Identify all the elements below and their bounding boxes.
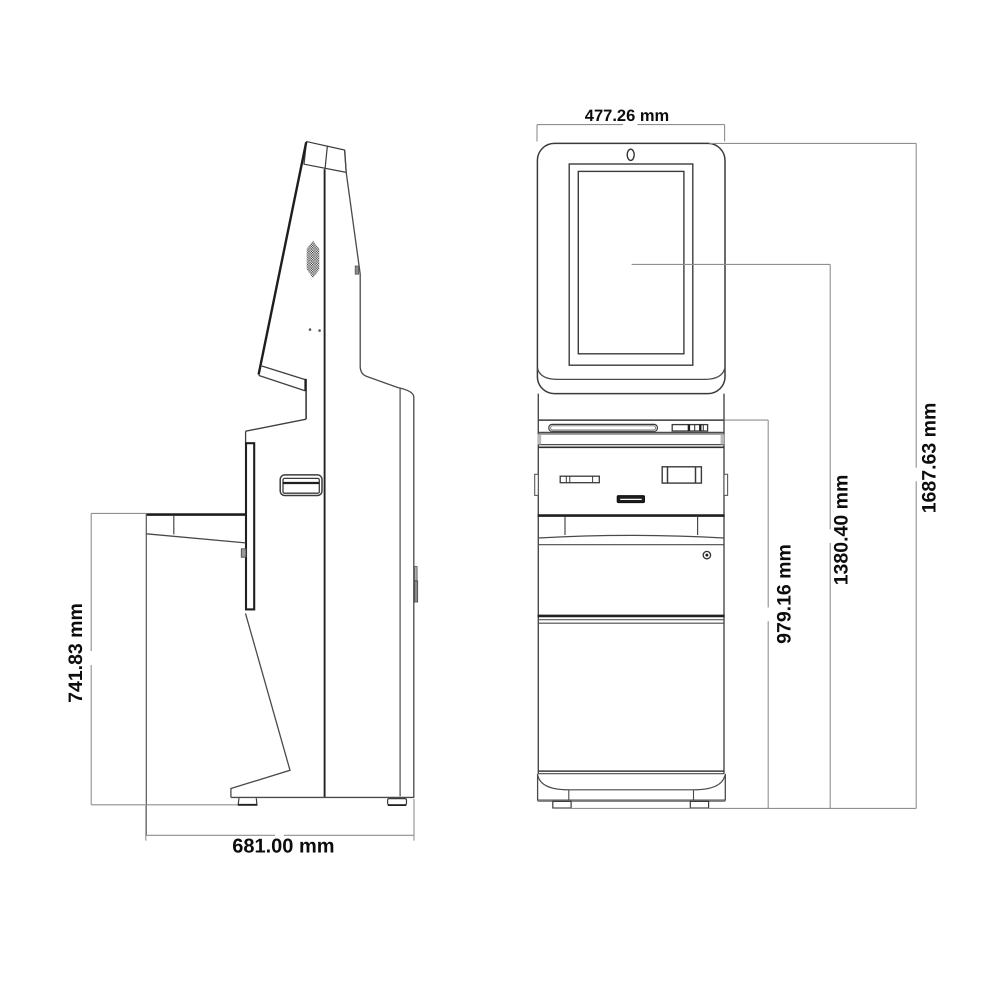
svg-text:741.83 mm: 741.83 mm	[65, 603, 87, 703]
svg-text:1687.63 mm: 1687.63 mm	[919, 403, 941, 514]
svg-text:1380.40 mm: 1380.40 mm	[831, 475, 853, 586]
svg-text:477.26 mm: 477.26 mm	[585, 107, 669, 125]
svg-text:681.00 mm: 681.00 mm	[232, 836, 334, 858]
svg-text:979.16 mm: 979.16 mm	[774, 544, 796, 644]
